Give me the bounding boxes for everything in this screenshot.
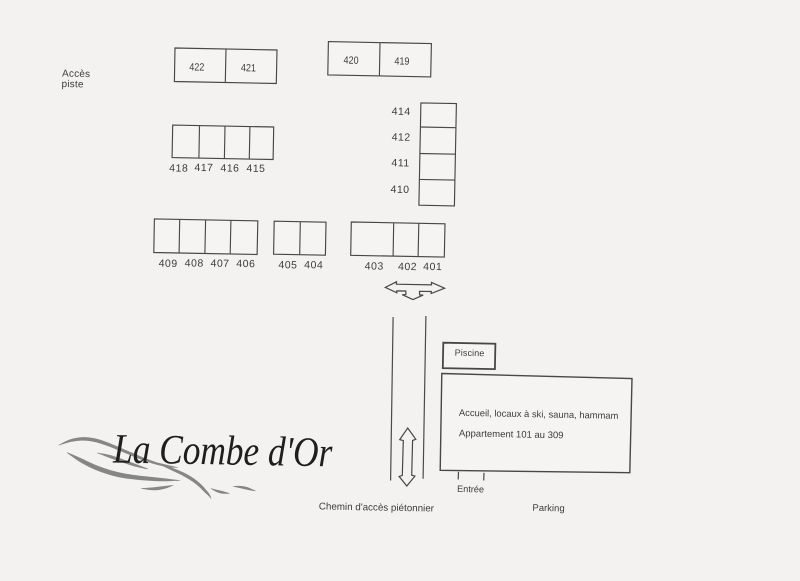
svg-text:piste: piste bbox=[61, 79, 84, 90]
svg-text:416: 416 bbox=[220, 162, 239, 174]
svg-text:422: 422 bbox=[189, 61, 204, 73]
svg-text:418: 418 bbox=[169, 162, 188, 174]
svg-text:Appartement 101 au 309: Appartement 101 au 309 bbox=[459, 428, 564, 441]
svg-text:405: 405 bbox=[278, 259, 297, 271]
svg-text:402: 402 bbox=[398, 261, 417, 273]
svg-text:401: 401 bbox=[423, 261, 442, 273]
svg-text:403: 403 bbox=[365, 260, 384, 272]
svg-text:412: 412 bbox=[392, 131, 411, 143]
svg-text:409: 409 bbox=[159, 258, 178, 270]
svg-text:420: 420 bbox=[343, 55, 358, 67]
svg-text:Piscine: Piscine bbox=[455, 348, 485, 359]
svg-text:408: 408 bbox=[185, 257, 204, 269]
svg-text:Chemin d'accès piétonnier: Chemin d'accès piétonnier bbox=[319, 501, 435, 514]
svg-text:419: 419 bbox=[394, 55, 409, 67]
svg-text:414: 414 bbox=[392, 106, 411, 118]
svg-text:407: 407 bbox=[210, 258, 229, 270]
svg-text:417: 417 bbox=[194, 162, 213, 174]
svg-text:Entrée: Entrée bbox=[457, 484, 484, 495]
svg-text:410: 410 bbox=[390, 184, 409, 196]
svg-text:Parking: Parking bbox=[532, 503, 564, 515]
svg-text:421: 421 bbox=[241, 62, 256, 74]
svg-text:404: 404 bbox=[304, 259, 323, 271]
svg-text:406: 406 bbox=[236, 258, 255, 270]
svg-text:411: 411 bbox=[391, 157, 409, 169]
svg-text:415: 415 bbox=[246, 163, 265, 175]
svg-text:La Combe d'Or: La Combe d'Or bbox=[112, 426, 334, 476]
